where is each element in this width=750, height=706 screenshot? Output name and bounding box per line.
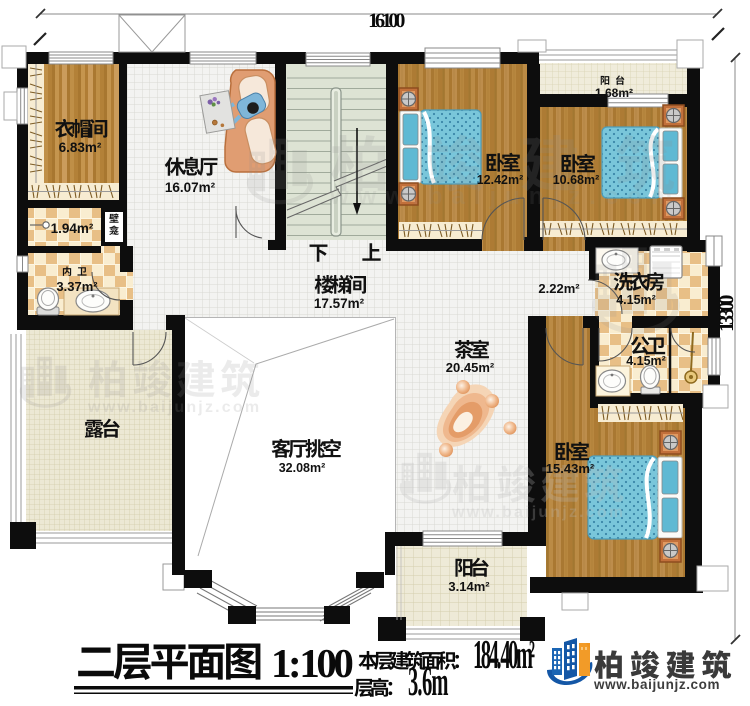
svg-text:3.37m²: 3.37m²: [56, 279, 98, 294]
svg-text:17.57m²: 17.57m²: [314, 296, 365, 311]
svg-text:4.15m²: 4.15m²: [616, 293, 656, 307]
svg-text:www.baijunjz.com: www.baijunjz.com: [593, 677, 720, 692]
svg-text:32.08m²: 32.08m²: [279, 461, 326, 475]
svg-text:2.22m²: 2.22m²: [538, 281, 580, 296]
svg-text:15.43m²: 15.43m²: [546, 461, 595, 476]
svg-text:3.14m²: 3.14m²: [448, 579, 490, 594]
svg-text:www.baijunjz.com: www.baijunjz.com: [329, 183, 681, 210]
svg-text:www.baijunjz.com: www.baijunjz.com: [451, 504, 625, 521]
svg-text:12.42m²: 12.42m²: [477, 173, 524, 187]
svg-text:6.83m²: 6.83m²: [59, 140, 102, 155]
svg-text:16.07m²: 16.07m²: [165, 180, 216, 195]
svg-text:www.baijunjz.com: www.baijunjz.com: [87, 399, 261, 416]
svg-text:1.94m²: 1.94m²: [51, 221, 94, 236]
svg-text:4.15m²: 4.15m²: [626, 354, 666, 368]
svg-text:10.68m²: 10.68m²: [553, 173, 600, 187]
svg-text:20.45m²: 20.45m²: [446, 360, 495, 375]
svg-text:1.68m²: 1.68m²: [595, 86, 633, 100]
